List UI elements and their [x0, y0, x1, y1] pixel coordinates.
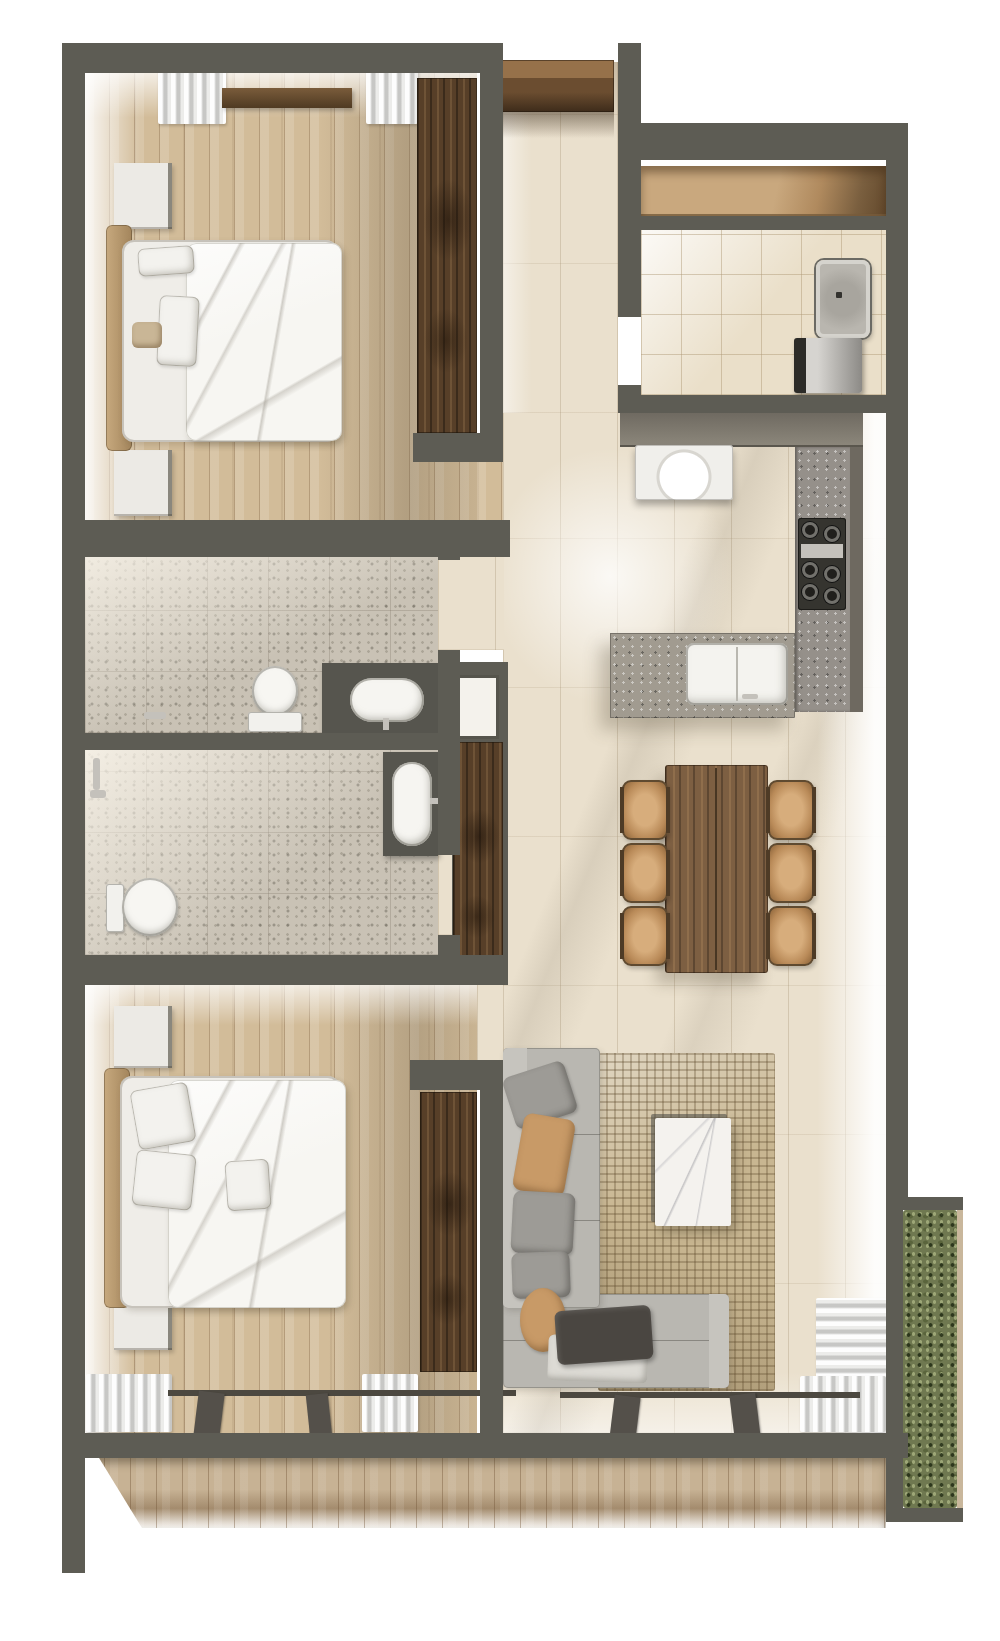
dining-chair [768, 906, 814, 966]
storage-niche [641, 166, 886, 216]
wall-top [62, 43, 503, 73]
curtain [158, 64, 226, 124]
shaft-niche [455, 675, 499, 739]
shower-head [90, 790, 106, 798]
bed-pillow [129, 1081, 197, 1150]
toilet-tank [248, 712, 302, 732]
planter-rim [957, 1210, 963, 1508]
wall-planter-top [886, 1197, 963, 1210]
hob-burner [802, 522, 818, 538]
wall-utility-bottom [618, 395, 905, 413]
hall-wardrobe [453, 742, 503, 978]
toilet [122, 878, 178, 936]
sink [350, 678, 424, 722]
faucet [742, 694, 758, 699]
nightstand [114, 450, 172, 516]
coffee-table [655, 1118, 731, 1226]
wall-topright [641, 123, 905, 160]
kitchen-wall-counter [620, 413, 863, 447]
sink [392, 762, 432, 846]
shower-tray [816, 260, 870, 338]
shower-fixture [93, 758, 100, 790]
dining-chair [768, 843, 814, 903]
entry-door-canopy [500, 60, 614, 112]
hob-control-strip [801, 544, 843, 558]
nightstand [114, 1006, 172, 1068]
wall-hall-stub [618, 43, 641, 317]
curtain [366, 66, 418, 124]
wall-bedroom2-hall [480, 1062, 503, 1433]
shower-fixture [144, 712, 166, 719]
curtain [800, 1376, 886, 1432]
bed-pillow [131, 1149, 197, 1211]
dining-chair [622, 906, 668, 966]
wall-niche-separator [641, 216, 886, 230]
nightstand [114, 163, 172, 229]
bedroom-2-door-floor [477, 985, 503, 1062]
wall-bedroom1-hall [480, 43, 503, 462]
dining-chair [768, 780, 814, 840]
hob-burner [802, 584, 818, 600]
dining-chair [622, 780, 668, 840]
curtain [362, 1374, 418, 1432]
terrace-deck [84, 1458, 886, 1528]
wall-shelf [222, 88, 352, 108]
throw-blanket [554, 1305, 654, 1366]
kitchen-backsplash [850, 447, 863, 712]
hob-burner [802, 562, 818, 578]
curtain [816, 1298, 886, 1378]
hob-burner [824, 526, 840, 542]
shower-drain [836, 292, 842, 298]
faucet [383, 718, 389, 730]
curtain [86, 1374, 172, 1432]
wall-bedroom2-stub [410, 1060, 503, 1090]
wall-right [886, 123, 908, 1197]
wall-bedroom1-jamb [413, 433, 503, 462]
bedroom-1-door-floor [477, 462, 503, 520]
bathroom-1-doorway-floor [438, 557, 504, 650]
island-sink-divider [736, 647, 738, 701]
bed-cushion [132, 322, 162, 348]
bed-pillow [224, 1159, 271, 1212]
wall-bath-divider [62, 733, 440, 750]
wall-planter-bottom [886, 1508, 963, 1522]
toilet [252, 666, 298, 716]
floor-shading [503, 62, 618, 413]
dining-chair [622, 843, 668, 903]
hob-burner [824, 566, 840, 582]
washing-machine [794, 338, 862, 393]
hedge-planter [903, 1210, 957, 1508]
countertop-appliance [635, 445, 733, 500]
wall-left [62, 43, 85, 1573]
wall-bottom [62, 1433, 908, 1458]
entry-hall-floor [503, 62, 618, 413]
sliding-door-track [560, 1392, 860, 1398]
wardrobe [417, 78, 477, 433]
dining-table-seam [715, 768, 717, 970]
throw-pillow [510, 1190, 575, 1255]
bed-pillow [137, 245, 195, 277]
wall-bath-right [438, 545, 460, 560]
bed-pillow [156, 295, 200, 367]
wardrobe [420, 1092, 477, 1372]
bed-duvet [186, 243, 342, 441]
sofa-armrest [709, 1294, 729, 1388]
wall-planter-left [886, 1210, 903, 1520]
wall-bath-right [438, 650, 460, 855]
hob-burner [824, 588, 840, 604]
floor-plan [0, 0, 1000, 1641]
wall-bedroom2-top [62, 955, 508, 985]
